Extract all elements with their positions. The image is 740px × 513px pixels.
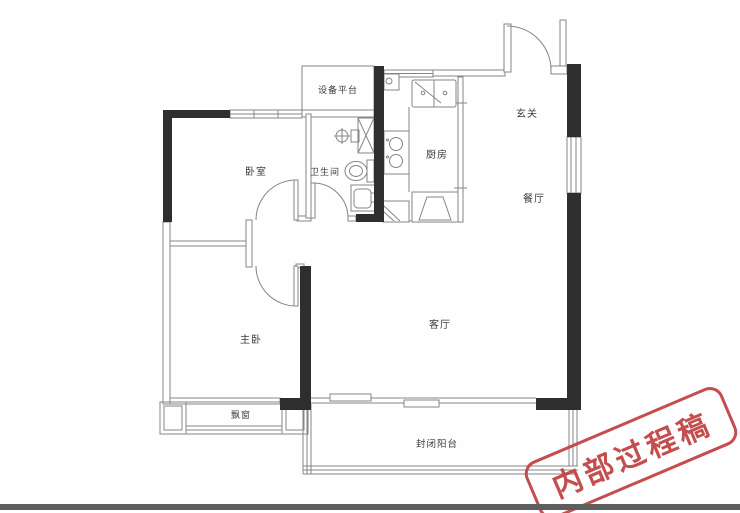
living-room-sliding-door: [311, 394, 536, 407]
room-label-bay-window: 飘窗: [231, 409, 251, 421]
cabinet-icon: [383, 201, 409, 222]
room-label-living-room: 客厅: [429, 318, 451, 331]
right-wall-window: [567, 137, 581, 193]
room-label-equipment-platform: 设备平台: [318, 84, 358, 96]
room-label-bathroom: 卫生间: [310, 166, 340, 178]
room-label-master-bedroom: 主卧: [240, 333, 262, 346]
kitchen-sink-icon: [412, 80, 456, 107]
stove-icon: [384, 131, 409, 174]
room-label-dining-room: 餐厅: [523, 192, 545, 205]
entry-door-arc: [504, 24, 551, 72]
master-bedroom-door-arc: [256, 266, 298, 306]
partition-walls: [163, 20, 567, 404]
shower-icon: [334, 128, 359, 144]
bedroom-window: [230, 110, 302, 118]
room-label-entry-hall: 玄关: [516, 107, 538, 120]
bathroom-sink-icon: [351, 185, 375, 211]
toilet-icon: [345, 160, 374, 182]
bottom-edge-bar: [0, 504, 740, 510]
bathroom-door-arc: [311, 183, 348, 218]
room-label-kitchen: 厨房: [426, 148, 448, 161]
flue-icon: [384, 74, 399, 90]
floor-plan: 设备平台 卧室 卫生间 厨房 玄关 餐厅 客厅 主卧 飘窗 封闭阳台 内部过程稿: [0, 0, 740, 513]
bedroom-door-arc: [256, 180, 298, 220]
room-label-bedroom: 卧室: [245, 165, 267, 178]
room-label-enclosed-balcony: 封闭阳台: [416, 438, 458, 450]
fridge-icon: [412, 192, 458, 222]
washer-icon: [358, 118, 374, 153]
